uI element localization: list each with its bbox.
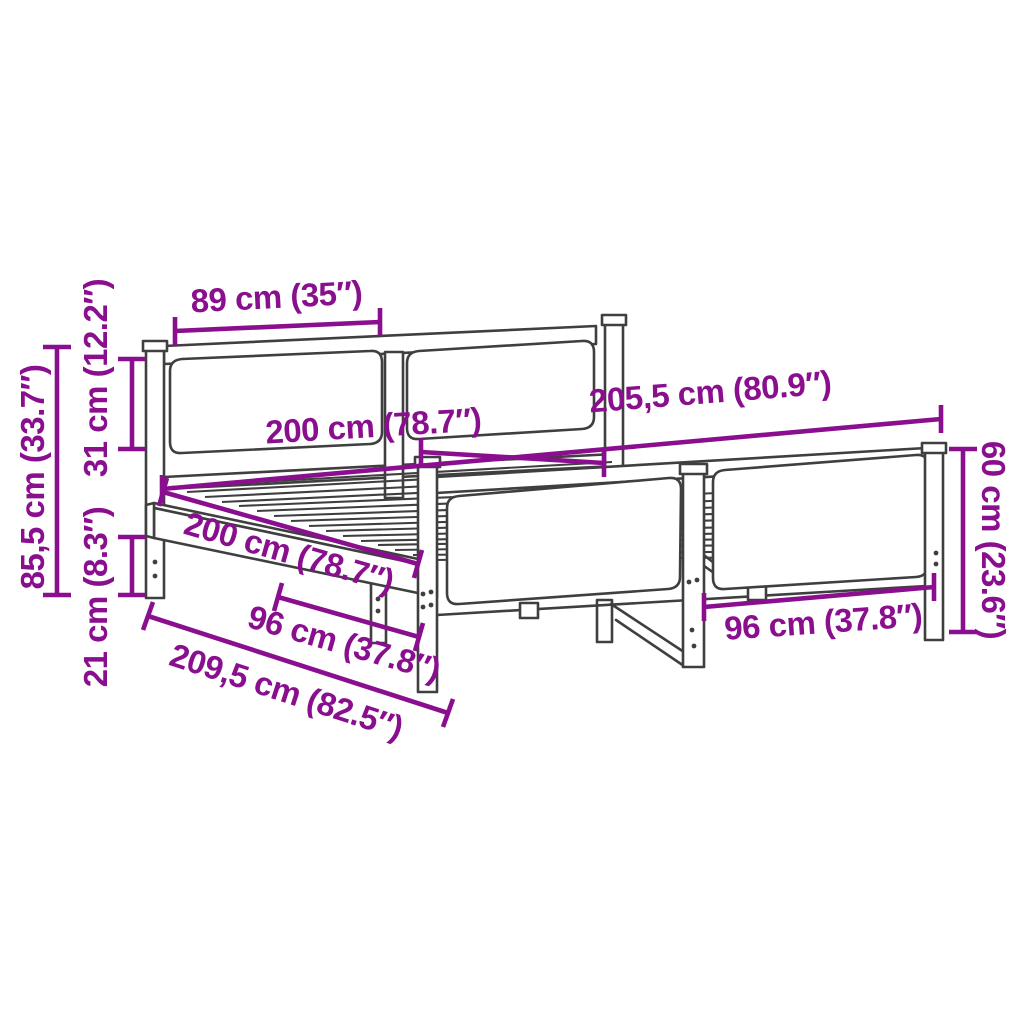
footboard-post-right bbox=[925, 446, 943, 640]
dim-inner-length-diagonal: 200 cm (78.7″) bbox=[159, 478, 422, 600]
dim-footboard-height: 60 cm (23.6″) bbox=[949, 441, 1012, 639]
dim-label-31: 31 cm (12.2″) bbox=[77, 279, 114, 477]
diagram-canvas: 89 cm (35″) 85,5 cm (33.7″) 31 cm (12.2″… bbox=[0, 0, 1024, 1024]
dim-headboard-cushion-width: 89 cm (35″) bbox=[175, 274, 380, 345]
dim-label-85-5: 85,5 cm (33.7″) bbox=[14, 365, 51, 590]
footboard-cushion-left bbox=[447, 478, 681, 604]
footboard-post-middle bbox=[683, 467, 704, 667]
bed-frame-dimension-diagram: 89 cm (35″) 85,5 cm (33.7″) 31 cm (12.2″… bbox=[0, 0, 1024, 1024]
dim-label-205-5: 205,5 cm (80.9″) bbox=[588, 364, 833, 420]
centre-support bbox=[597, 600, 684, 666]
dim-label-21: 21 cm (8.3″) bbox=[77, 507, 114, 687]
dim-headboard-cushion-height: 31 cm (12.2″) bbox=[77, 279, 146, 477]
footboard-cushion-right bbox=[713, 455, 928, 589]
dim-label-89: 89 cm (35″) bbox=[190, 274, 363, 320]
dim-under-bed-clearance: 21 cm (8.3″) bbox=[77, 507, 146, 687]
footboard bbox=[415, 443, 946, 692]
dim-label-60: 60 cm (23.6″) bbox=[975, 441, 1012, 639]
dim-headboard-height: 85,5 cm (33.7″) bbox=[14, 347, 71, 595]
